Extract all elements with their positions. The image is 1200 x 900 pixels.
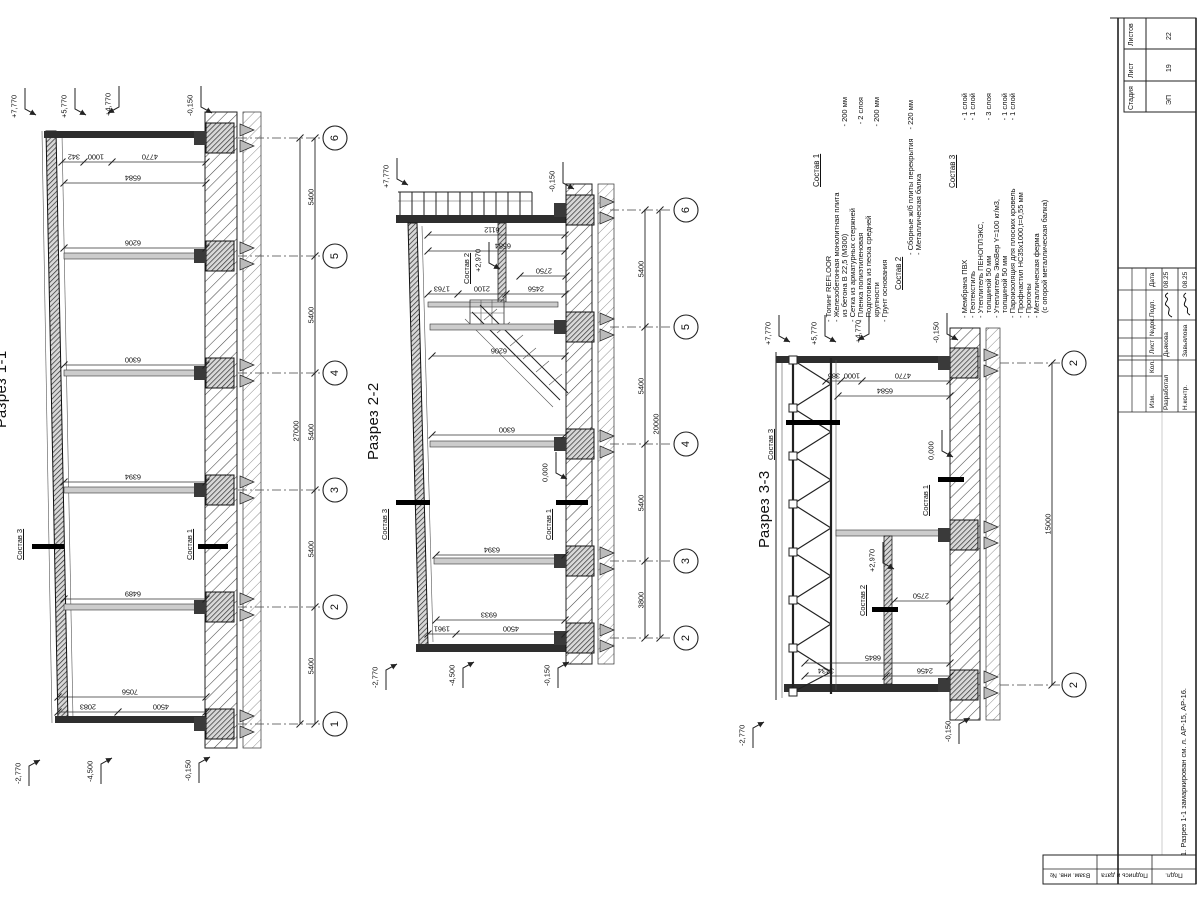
layer-text: - Грунт основания (881, 260, 889, 322)
composition-2-notes: Состав 2 - Сборные ж/б плиты перекрытия-… (894, 100, 923, 295)
dim-label: 4770 (895, 372, 911, 381)
span-dim: 5400 (307, 189, 316, 206)
elevation-label: -0,150 (548, 171, 557, 192)
drawing-sheet: 27000 5400 5400 5400 5400 5400 6 5 4 3 2… (0, 0, 1200, 900)
composition-ref-label: Состав 2 (463, 253, 471, 284)
stamp-col-rev: Изм. (1150, 394, 1157, 408)
dim-label: 1763 (434, 285, 450, 294)
layer-value: - 200 мм (841, 97, 849, 133)
stamp-sheet-value: 19 (1166, 64, 1173, 72)
level-mark-bar (32, 544, 64, 549)
dim-label: 3434 (818, 667, 834, 676)
layer-text: (с опорой металлическая балка) (1041, 200, 1049, 313)
dim-label: 6584 (495, 242, 511, 251)
span-dim: 5400 (637, 495, 646, 512)
ground-hatch-strip-2 (598, 184, 614, 664)
roof-walkway-railing (396, 192, 568, 223)
level-mark-bar (786, 420, 840, 425)
ground-hatch-strip-2 (243, 112, 261, 748)
elevation-label: -0,150 (944, 721, 953, 742)
section-1-1-drawing: 27000 5400 5400 5400 5400 5400 6 5 4 3 2… (10, 86, 348, 786)
end-wall-cap (416, 644, 568, 652)
signature-role: Разработал (1164, 375, 1171, 410)
mezzanine-slab (428, 302, 558, 307)
layer-value (1041, 93, 1049, 99)
frame-cell-label: Подпись и дата (1099, 871, 1150, 878)
dim-label: 2750 (536, 267, 552, 276)
elevation-label: -2,770 (14, 763, 23, 784)
dim-label: 4770 (142, 153, 158, 162)
layer-value: - 200 мм (873, 97, 881, 133)
stamp-col-qty: Кол. (1150, 360, 1157, 373)
stamp-col-date: Дата (1150, 273, 1157, 287)
stamp-stage-label: Стадия (1128, 86, 1135, 110)
layer-value (825, 97, 833, 103)
span-dim: 5400 (637, 378, 646, 395)
elevation-label: -4,500 (448, 665, 457, 686)
dim-label: 6300 (125, 356, 141, 365)
signature-date: 08.25 (1164, 272, 1171, 288)
grid-bubble-label: 2 (1068, 682, 1080, 688)
frame-cell-label: Взам. инв. № (1045, 871, 1095, 878)
dim-label: 1000 (88, 153, 104, 162)
composition-ref-label: Состав 1 (186, 529, 194, 560)
section-2-title: Разрез 2-2 (366, 382, 381, 460)
layer-value (1017, 93, 1025, 99)
composition-ref-label: Состав 2 (859, 585, 867, 616)
composition-ref-label: Состав 3 (381, 509, 389, 540)
grid-bubble-label: 3 (680, 558, 692, 564)
total-dim: 15000 (1044, 514, 1053, 535)
grid-bubble-label: 5 (680, 324, 692, 330)
grid-bubble-label: 6 (329, 135, 341, 141)
elevation-label: +7,770 (764, 322, 773, 345)
dim-label: 6394 (484, 546, 500, 555)
roof-slab-cap (44, 131, 212, 138)
dim-label: 2456 (917, 667, 933, 676)
span-dim: 5400 (307, 658, 316, 675)
span-dim: 5400 (307, 424, 316, 441)
total-dim: 20000 (652, 414, 661, 435)
grid-bubble-label: 2 (1068, 360, 1080, 366)
wall-section (46, 131, 68, 722)
elevation-label: -2,770 (371, 667, 380, 688)
grid-bubble-label: 6 (680, 207, 692, 213)
sheet-note: 1. Разрез 1-1 замаркирован см. л. АР-15,… (1180, 688, 1188, 856)
grid-bubbles (1062, 351, 1086, 697)
elevation-label: +2,970 (474, 249, 483, 272)
elevation-label: -4,500 (86, 761, 95, 782)
grid-bubble-label: 2 (329, 604, 341, 610)
level-mark-bar (198, 544, 228, 549)
dim-label: 7056 (122, 688, 138, 697)
dim-label: 2083 (80, 703, 96, 712)
title-block-frame (1043, 18, 1196, 884)
level-mark-bar (872, 607, 898, 612)
dim-label: 2100 (474, 285, 490, 294)
roof-truss (789, 356, 831, 696)
mid-slab (836, 530, 950, 536)
span-dim: 3800 (637, 592, 646, 609)
grid-bubble-label: 4 (680, 441, 692, 447)
dim-label: 1961 (434, 625, 450, 634)
dim-label: 6584 (877, 387, 893, 396)
layer-value (881, 97, 889, 103)
composition-title: Состав 2 (894, 100, 903, 290)
section-1-title: Разрез 1-1 (0, 350, 9, 428)
layer-value: - 220 мм (907, 100, 915, 136)
dim-label: 6584 (125, 174, 141, 183)
section-3-3-drawing: 15000 2 2 385 1000 4770 6584 2750 6845 3… (738, 313, 1087, 748)
dim-label: 4500 (503, 625, 519, 634)
wall-section (408, 223, 428, 645)
elevation-label: -0,150 (543, 665, 552, 686)
stair-flight (465, 300, 568, 407)
layer-value: - 2 слоя (857, 97, 865, 130)
elevation-label: -0,150 (186, 95, 195, 116)
grid-bubbles (323, 126, 347, 736)
section-2-2-drawing: 5400 5400 5400 3800 20000 6 5 4 3 2 6112 (371, 158, 699, 690)
layer-value: - 1 слой (969, 93, 977, 126)
end-wall-cap (784, 684, 956, 692)
span-dim: 5400 (307, 541, 316, 558)
dim-label: 2750 (913, 592, 929, 601)
composition-ref-label: Состав 3 (767, 429, 775, 460)
stamp-col-doc: №док. (1150, 317, 1157, 336)
elevation-label: +7,770 (382, 165, 391, 188)
dim-label: 6845 (865, 654, 881, 663)
span-dim: 5400 (307, 307, 316, 324)
composition-ref-label: Состав 1 (922, 485, 930, 516)
dim-label: 2456 (528, 285, 544, 294)
dim-label: 6206 (125, 239, 141, 248)
layer-value (1025, 93, 1033, 99)
stamp-stage-value: ЭП (1166, 95, 1173, 105)
dim-label: 342 (68, 153, 80, 162)
composition-ref-label: Состав 1 (545, 509, 553, 540)
layer-value (915, 100, 923, 106)
span-dim: 5400 (637, 261, 646, 278)
stamp-sheets-value: 22 (1166, 32, 1173, 40)
section-3-title: Разрез 3-3 (757, 470, 772, 548)
grid-bubble-label: 4 (329, 370, 341, 376)
dim-label: 385 (828, 372, 840, 381)
ground-hatch-strip (205, 112, 237, 748)
dim-label: 1000 (844, 372, 860, 381)
dim-label: 6489 (125, 590, 141, 599)
grid-bubble-label: 2 (680, 635, 692, 641)
elevation-label: +2,970 (868, 549, 877, 572)
level-mark-bar (938, 477, 964, 482)
grid-bubble-label: 1 (329, 721, 341, 727)
stamp-sheets-label: Листов (1128, 23, 1135, 46)
level-mark-bar (396, 500, 430, 505)
elevation-label: -0,150 (184, 760, 193, 781)
layer-value (1033, 93, 1041, 99)
grid-bubble-label: 3 (329, 487, 341, 493)
ground-hatch-strip (566, 184, 592, 664)
grid-bubble-label: 5 (329, 253, 341, 259)
grid-bubbles (674, 198, 698, 650)
layer-value: - 1 слой (1009, 93, 1017, 126)
dim-label: 6206 (491, 347, 507, 356)
end-wall-cap (776, 356, 954, 363)
elevation-label: 0,000 (541, 463, 550, 482)
stamp-col-sign: Подп. (1150, 300, 1157, 317)
end-wall-cap (55, 716, 215, 723)
signature-name: Завьялова (1183, 325, 1190, 357)
composition-1-notes: Состав 1 - Топинг REFLOOR - Железобетонн… (812, 97, 889, 322)
signature-date: 08.25 (1183, 272, 1190, 288)
dim-label: 6394 (125, 473, 141, 482)
dim-label: 6300 (499, 426, 515, 435)
dim-label: 6112 (484, 226, 499, 235)
composition-line: - Металлическая балка (915, 100, 923, 255)
stamp-sheet-label: Лист (1128, 63, 1135, 78)
composition-title: Состав 3 (948, 93, 957, 188)
elevation-label: +4,770 (854, 320, 863, 343)
frame-cell-label: Подл. (1154, 871, 1194, 878)
elevation-label: +5,770 (60, 95, 69, 118)
dim-label: 6933 (481, 611, 497, 620)
stamp-col-sheet: Лист (1150, 340, 1157, 354)
dim-label: 4500 (153, 703, 169, 712)
layer-value: - 3 слоя (985, 93, 993, 126)
elevation-label: +4,770 (104, 93, 113, 116)
elevation-label: 0,000 (927, 441, 936, 460)
total-dim: 27000 (292, 421, 301, 442)
composition-line: - Грунт основания (881, 97, 889, 322)
elevation-label: +5,770 (810, 322, 819, 345)
signature-name: Дьякова (1164, 332, 1171, 357)
composition-title: Состав 1 (812, 97, 821, 187)
composition-ref-label: Состав 3 (16, 529, 24, 560)
signature-role: Н.контр. (1183, 385, 1190, 410)
composition-3-notes: Состав 3 - Мембрана ПВХ- 1 слой - Геотек… (948, 93, 1049, 318)
level-mark-bar (556, 500, 588, 505)
elevation-label: -0,150 (932, 322, 941, 343)
composition-line: (с опорой металлическая балка) (1041, 93, 1049, 318)
elevation-label: +7,770 (10, 95, 19, 118)
layer-text: - Металлическая балка (915, 174, 923, 255)
elevation-label: -2,770 (738, 725, 747, 746)
